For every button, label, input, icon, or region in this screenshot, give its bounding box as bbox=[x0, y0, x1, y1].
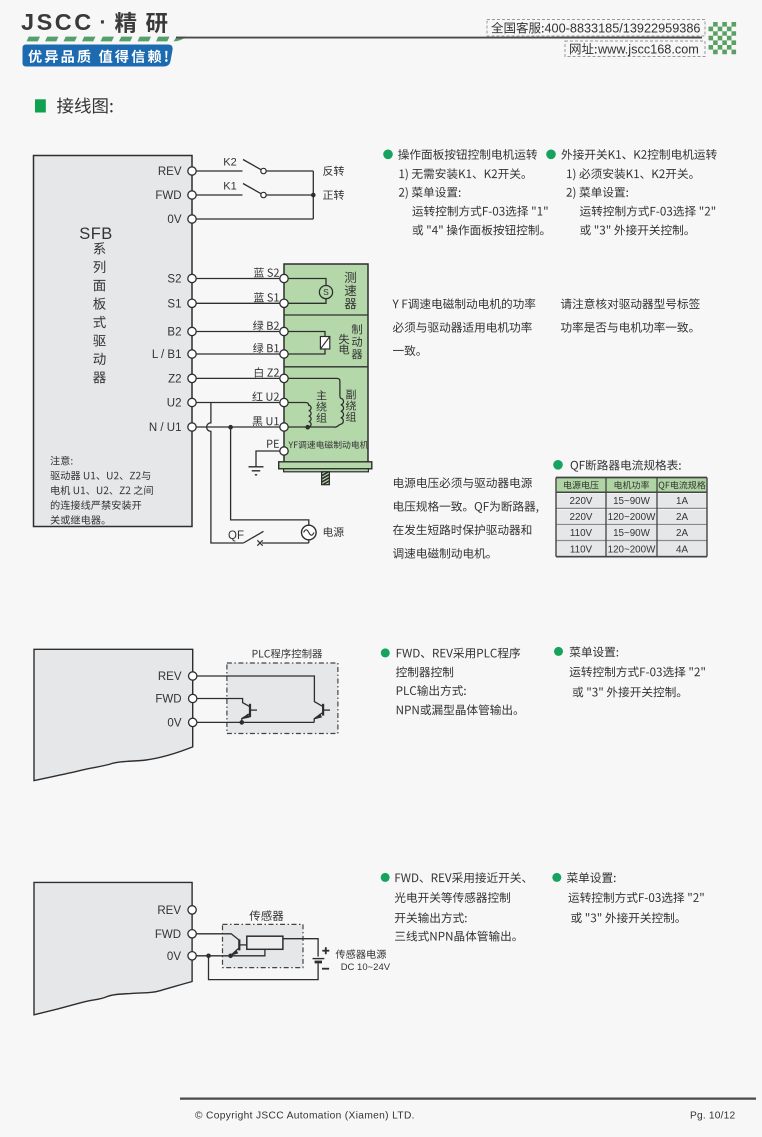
svg-text:FWD: FWD bbox=[155, 694, 181, 706]
svg-text:www.jscc168.com: www.jscc168.com bbox=[597, 43, 699, 57]
svg-text:S2: S2 bbox=[167, 274, 181, 286]
svg-text:FWD: FWD bbox=[155, 929, 181, 941]
svg-text:REV: REV bbox=[158, 166, 182, 178]
svg-text:2A: 2A bbox=[676, 528, 688, 539]
svg-text:B2: B2 bbox=[167, 327, 181, 339]
svg-text:0V: 0V bbox=[167, 951, 181, 963]
svg-text:15~90W: 15~90W bbox=[613, 496, 651, 507]
svg-text:L / B1: L / B1 bbox=[152, 349, 182, 361]
svg-text:0V: 0V bbox=[167, 214, 181, 226]
svg-text:N / U1: N / U1 bbox=[149, 422, 182, 434]
svg-text:Z2: Z2 bbox=[168, 374, 181, 386]
svg-text:110V: 110V bbox=[570, 544, 593, 555]
svg-text:REV: REV bbox=[157, 905, 181, 917]
svg-text:SFB: SFB bbox=[79, 225, 113, 243]
svg-text:U2: U2 bbox=[167, 398, 182, 410]
svg-text:120~200W: 120~200W bbox=[608, 544, 656, 555]
svg-text:DC 10~24V: DC 10~24V bbox=[341, 962, 391, 973]
svg-text:S1: S1 bbox=[167, 299, 181, 311]
svg-text:400-8833185/13922959386: 400-8833185/13922959386 bbox=[545, 22, 701, 36]
svg-text:220V: 220V bbox=[570, 512, 593, 523]
svg-text:0V: 0V bbox=[167, 718, 181, 730]
svg-text:120~200W: 120~200W bbox=[608, 512, 656, 523]
svg-text:K1: K1 bbox=[223, 181, 236, 193]
svg-text:2A: 2A bbox=[676, 512, 688, 523]
svg-text:110V: 110V bbox=[570, 528, 593, 539]
svg-text:4A: 4A bbox=[676, 544, 688, 555]
svg-text:Pg. 10/12: Pg. 10/12 bbox=[690, 1111, 736, 1122]
svg-text:JSCC: JSCC bbox=[21, 9, 94, 35]
svg-text:S: S bbox=[323, 287, 329, 297]
svg-text:220V: 220V bbox=[570, 496, 593, 507]
svg-text:1A: 1A bbox=[676, 496, 688, 507]
svg-text:K2: K2 bbox=[223, 157, 236, 169]
svg-text:© Copyright JSCC Automation (X: © Copyright JSCC Automation (Xiamen) LTD… bbox=[195, 1111, 415, 1122]
svg-text:·: · bbox=[100, 11, 107, 34]
svg-text:QF: QF bbox=[228, 530, 244, 542]
svg-text:REV: REV bbox=[158, 671, 182, 683]
svg-text:FWD: FWD bbox=[155, 190, 181, 202]
svg-text:15~90W: 15~90W bbox=[613, 528, 651, 539]
